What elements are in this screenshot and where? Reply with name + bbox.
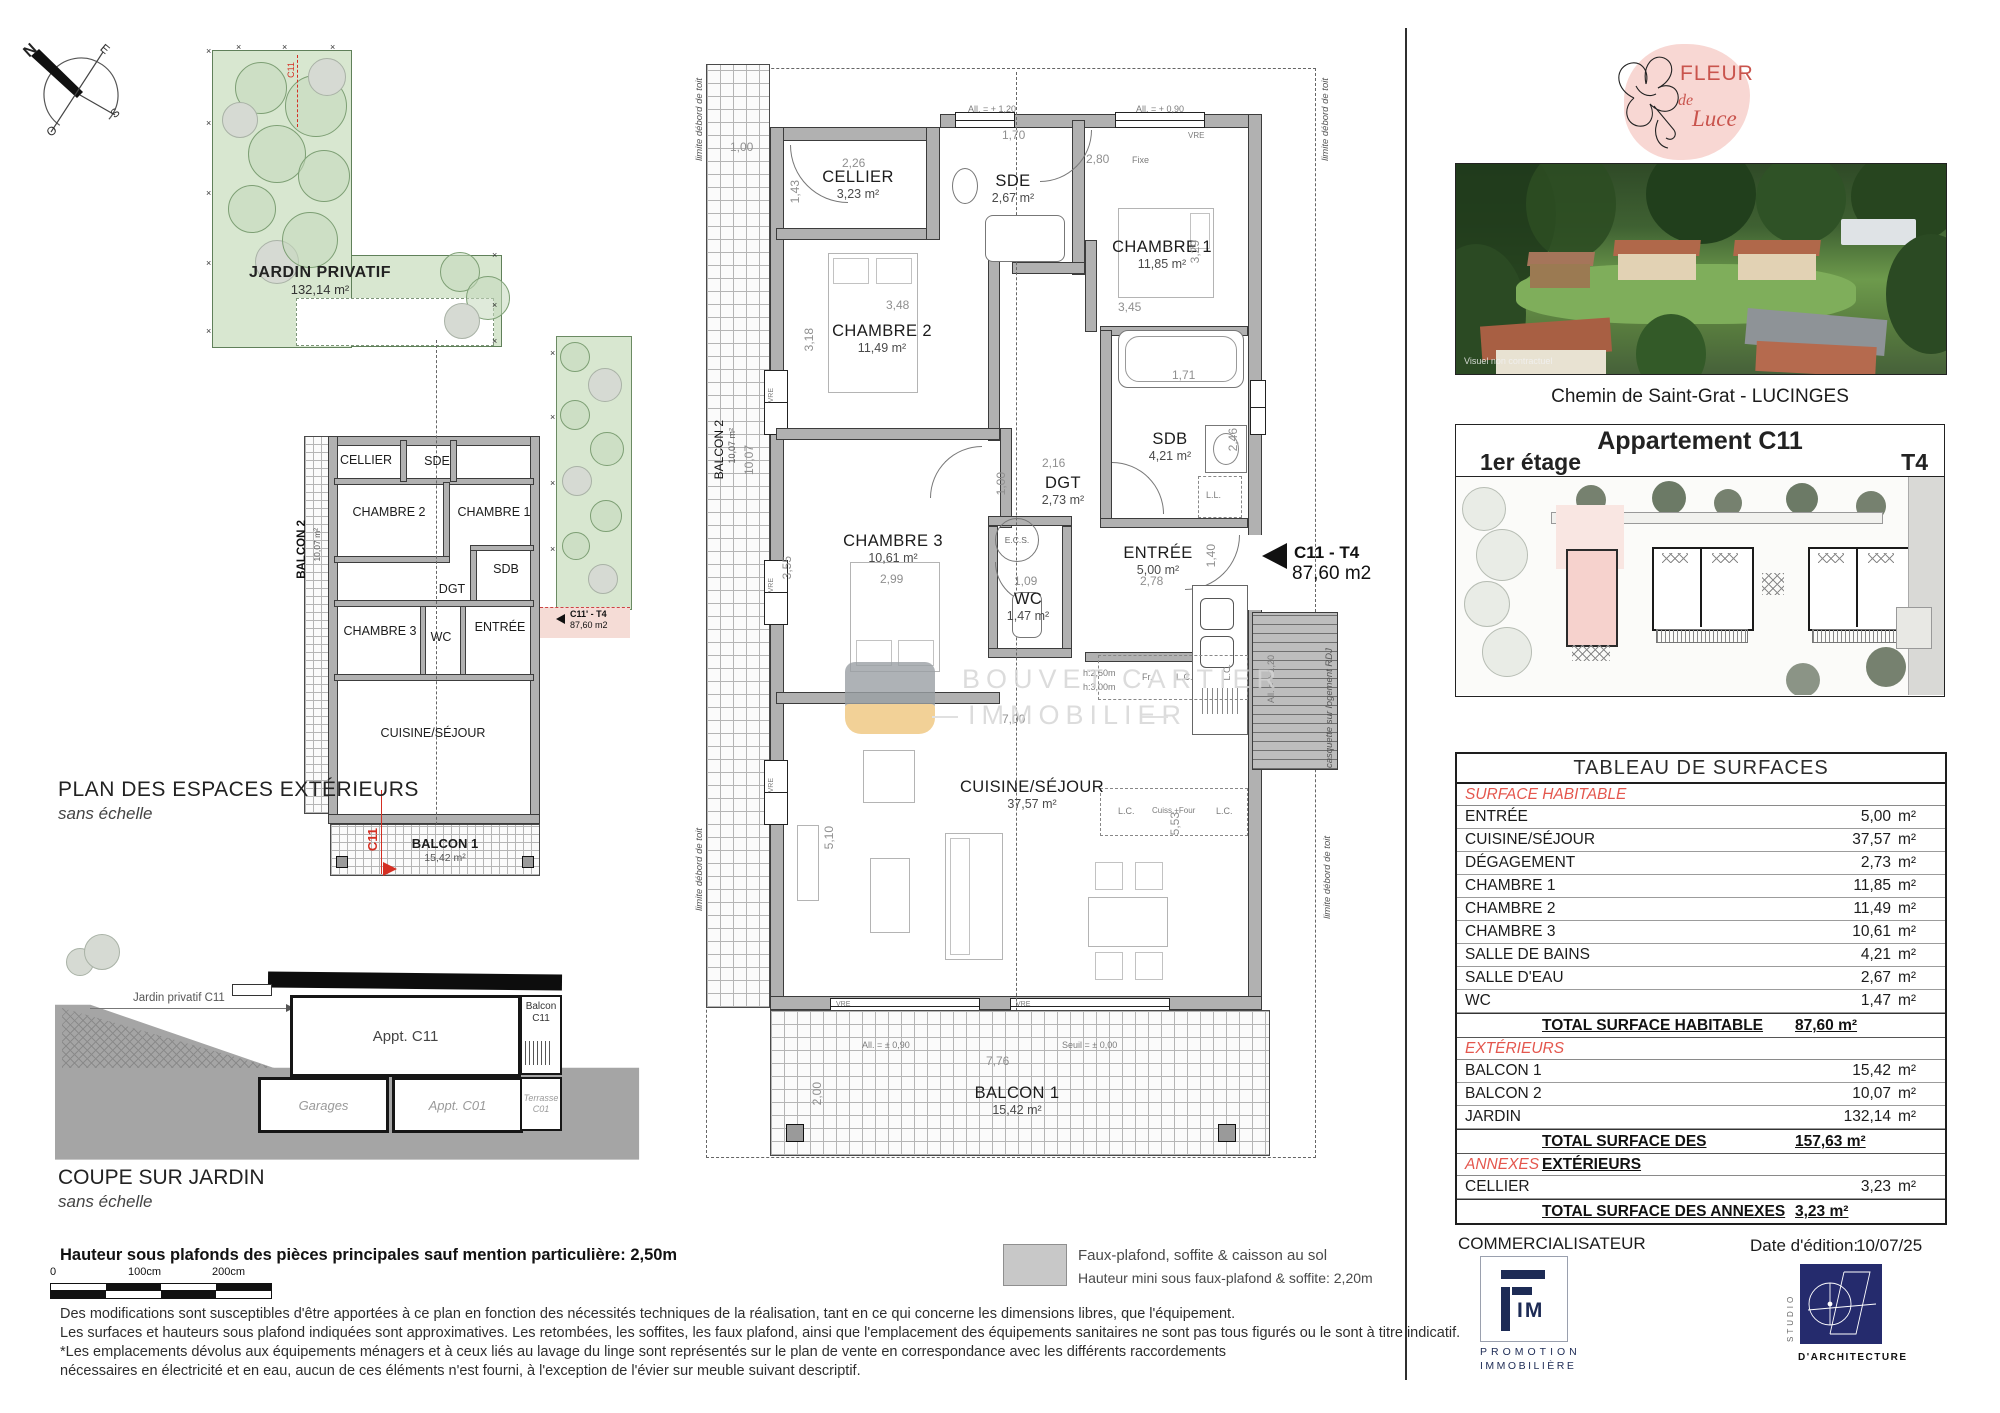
sp-room-chambre2: CHAMBRE 2 <box>353 505 426 519</box>
project-address: Chemin de Saint-Grat - LUCINGES <box>1551 386 1849 408</box>
sp-marker-arrow-icon <box>383 862 397 876</box>
unit-arrow-icon <box>1262 543 1287 569</box>
disclaimer-line: Les surfaces et hauteurs sous plafond in… <box>60 1325 1460 1341</box>
sp-balcon2-area: 10,07 m² <box>312 528 322 562</box>
mp-room-cuisine: CUISINE/SÉJOUR37,57 m² <box>960 778 1104 811</box>
sp-balcon1-area: 15,42 m² <box>424 852 465 864</box>
coupe-appt-c01: Appt. C01 <box>429 1098 487 1113</box>
sp-room-chambre3: CHAMBRE 3 <box>344 624 417 638</box>
mp-balcon2 <box>706 64 770 1008</box>
studio-architecture-logo <box>1800 1264 1882 1344</box>
legend-swatch <box>1003 1244 1067 1286</box>
fim-sub1: PROMOTION <box>1480 1346 1566 1358</box>
table-row: SALLE DE BAINS4,21m² <box>1457 944 1945 967</box>
coupe-terrasse-c01: Terrasse C01 <box>522 1093 560 1115</box>
mp-room-chambre2: CHAMBRE 211,49 m² <box>832 322 932 355</box>
sp-room-sdb: SDB <box>493 562 519 576</box>
sp-room-dgt: DGT <box>439 582 465 596</box>
mp-room-sde: SDE2,67 m² <box>992 172 1034 205</box>
disclaimer-line: nécessaires en électricité et en eau, au… <box>60 1363 861 1379</box>
sp-room-cuisine: CUISINE/SÉJOUR <box>381 726 486 740</box>
sp-balcon2-label: BALCON 2 <box>296 520 308 579</box>
ecs-label: E.C.S. <box>1005 535 1030 545</box>
mp-room-sdb: SDB4,21 m² <box>1149 430 1191 463</box>
table-row: BALCON 115,42m² <box>1457 1060 1945 1083</box>
photo-caption: Visuel non contractuel <box>1464 356 1552 366</box>
table-row: CHAMBRE 111,85m² <box>1457 875 1945 898</box>
table-row: CELLIER3,23m² <box>1457 1176 1945 1199</box>
apartment-box: Appartement C11 1er étage T4 <box>1455 424 1945 697</box>
panel-divider <box>1405 28 1407 1380</box>
mp-room-chambre3: CHAMBRE 310,61 m² <box>843 532 943 565</box>
sp-balcon1-label: BALCON 1 <box>412 836 478 851</box>
table-row: WC1,47m² <box>1457 990 1945 1013</box>
studio-vertical-label: STUDIO <box>1786 1268 1795 1342</box>
unit-tag-area: 87,60 m2 <box>570 620 608 630</box>
compass-icon: N E S O <box>25 40 135 150</box>
exterior-plan-title: PLAN DES ESPACES EXTÉRIEURS <box>58 778 419 802</box>
apartment-title: Appartement C11 <box>1597 427 1803 456</box>
site-plan <box>1456 477 1944 695</box>
mp-room-cellier: CELLIER3,23 m² <box>822 168 894 201</box>
edition-date-value: 10/07/25 <box>1856 1236 1922 1256</box>
surfaces-table: TABLEAU DE SURFACES SURFACE HABITABLE EN… <box>1455 752 1947 1225</box>
table-row: CHAMBRE 211,49m² <box>1457 898 1945 921</box>
mp-balcon2-area: 10,07 m² <box>727 428 737 464</box>
plan-de-vente-page: N E S O ×× ×× ×× ×× ×× × C11 JARDIN PRIV… <box>0 0 2000 1413</box>
mp-room-dgt: DGT2,73 m² <box>1042 474 1084 507</box>
mp-room-entree: ENTRÉE5,00 m² <box>1123 544 1192 577</box>
commercialisateur-label: COMMERCIALISATEUR <box>1458 1234 1646 1254</box>
unit-tag-code: C11' - T4 <box>570 609 607 619</box>
coupe-appt-c11: Appt. C11 <box>373 1028 439 1045</box>
mp-balcon1 <box>770 1010 1270 1156</box>
disclaimer-line: *Les emplacements dévolus aux équipement… <box>60 1344 1226 1360</box>
coupe-jardin-label: Jardin privatif C11 <box>133 992 225 1004</box>
apartment-floor: 1er étage <box>1480 449 1581 476</box>
table-row: DÉGAGEMENT2,73m² <box>1457 852 1945 875</box>
surfaces-table-title: TABLEAU DE SURFACES <box>1457 754 1945 784</box>
section-surface-habitable: SURFACE HABITABLE <box>1457 784 1945 806</box>
coupe-title: COUPE SUR JARDIN <box>58 1166 265 1190</box>
sp-room-cellier: CELLIER <box>340 453 392 467</box>
section-exterieurs: EXTÉRIEURS <box>1457 1038 1945 1060</box>
project-photo: Visuel non contractuel <box>1455 163 1947 375</box>
mp-room-wc: WC1,47 m² <box>1007 590 1049 623</box>
table-row: CHAMBRE 310,61m² <box>1457 921 1945 944</box>
coupe-subtitle: sans échelle <box>58 1192 153 1212</box>
sp-room-sde: SDE <box>424 454 450 468</box>
mp-balcon2-label: BALCON 2 <box>712 420 726 479</box>
total-exterieurs: TOTAL SURFACE DES EXTÉRIEURS157,63 m² <box>1457 1129 1945 1154</box>
disclaimer-line: Des modifications sont susceptibles d'êt… <box>60 1306 1235 1322</box>
sp-room-chambre1: CHAMBRE 1 <box>458 505 531 519</box>
coupe-garages: Garages <box>299 1098 349 1113</box>
ceiling-height-note: Hauteur sous plafonds des pièces princip… <box>60 1246 677 1265</box>
studio-architecture-label: D'ARCHITECTURE <box>1798 1352 1908 1363</box>
unit-arrow-small-icon <box>556 614 565 624</box>
table-row: ENTRÉE5,00m² <box>1457 806 1945 829</box>
coupe-balcon-c11: Balcon C11 <box>522 997 560 1025</box>
fim-sub2: IMMOBILIÈRE <box>1480 1360 1566 1372</box>
sp-marker-c11: C11 <box>365 828 380 851</box>
exterior-plan-subtitle: sans échelle <box>58 804 153 824</box>
jardin-label: JARDIN PRIVATIF 132,14 m² <box>249 264 391 297</box>
unit-arrow-code: C11 - T4 <box>1294 543 1359 563</box>
table-row: CUISINE/SÉJOUR37,57m² <box>1457 829 1945 852</box>
total-surface-habitable: TOTAL SURFACE HABITABLE87,60 m² <box>1457 1013 1945 1038</box>
table-row: JARDIN132,14m² <box>1457 1106 1945 1129</box>
mp-room-balcon1: BALCON 115,42 m² <box>975 1084 1060 1117</box>
total-annexes: TOTAL SURFACE DES ANNEXES3,23 m² <box>1457 1199 1945 1223</box>
sp-room-entree: ENTRÉE <box>475 620 526 634</box>
apartment-type: T4 <box>1901 449 1928 476</box>
unit-arrow-area: 87,60 m2 <box>1292 563 1371 585</box>
edition-date-label: Date d'édition: <box>1750 1236 1858 1256</box>
table-row: BALCON 210,07m² <box>1457 1083 1945 1106</box>
section-annexes: ANNEXES <box>1457 1154 1945 1176</box>
cut-marker-c11-top: C11 <box>286 62 296 78</box>
fim-logo: IM <box>1480 1256 1568 1342</box>
sp-room-wc: WC <box>431 630 452 644</box>
table-row: SALLE D'EAU2,67m² <box>1457 967 1945 990</box>
